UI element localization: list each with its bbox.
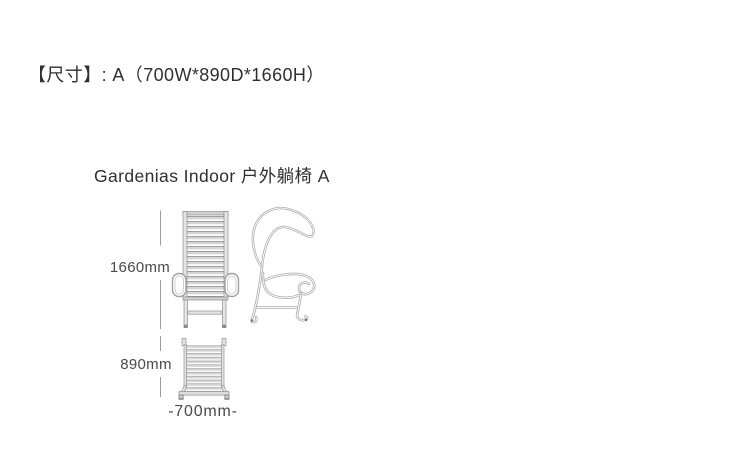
- height-dimension-label: 1660mm: [104, 259, 176, 276]
- front-view-drawing: [173, 212, 239, 329]
- width-dimension-label: -700mm-: [162, 403, 244, 421]
- top-view-drawing: [179, 339, 229, 400]
- product-dimension-page: 【尺寸】: A（700W*890D*1660H） Gardenias Indoo…: [0, 0, 750, 467]
- depth-dimension-label: 890mm: [110, 356, 182, 373]
- furniture-dimension-diagram: [0, 0, 750, 467]
- side-view-drawing: [251, 208, 315, 322]
